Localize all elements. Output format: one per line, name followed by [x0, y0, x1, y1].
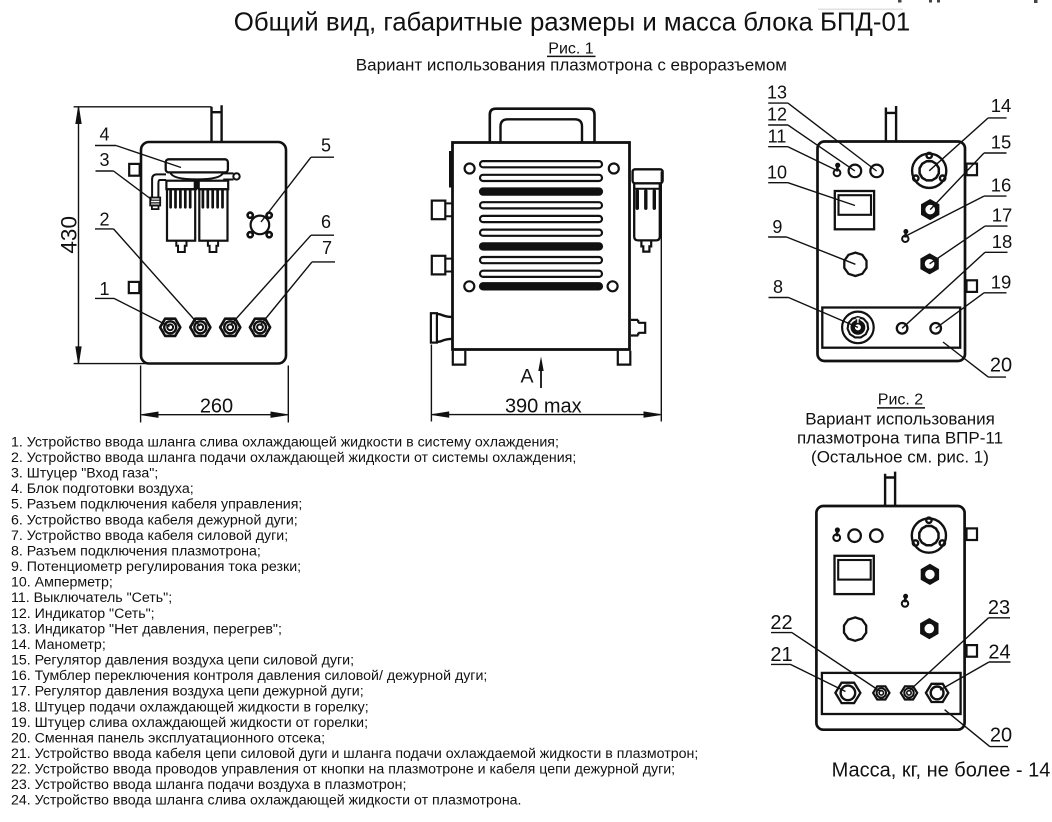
svg-text:1. Устройство ввода шланга сли: 1. Устройство ввода шланга слива охлажда…	[11, 434, 559, 450]
svg-text:А: А	[520, 366, 533, 388]
svg-text:390 max: 390 max	[505, 396, 582, 418]
svg-text:13: 13	[767, 83, 787, 103]
svg-text:8. Разъем подключения плазмотр: 8. Разъем подключения плазмотрона;	[11, 544, 261, 560]
svg-text:8: 8	[773, 277, 783, 297]
svg-text:3: 3	[99, 150, 109, 170]
svg-text:5. Разъем подключения кабеля у: 5. Разъем подключения кабеля управления;	[11, 497, 302, 513]
svg-text:15: 15	[991, 132, 1012, 153]
svg-text:17. Регулятор давления воздуха: 17. Регулятор давления воздуха цепи дежу…	[11, 684, 364, 700]
svg-text:23. Устройство ввода шланга по: 23. Устройство ввода шланга подачи возду…	[11, 777, 406, 793]
svg-text:3. Штуцер "Вход газа";: 3. Штуцер "Вход газа";	[11, 466, 158, 482]
svg-text:22. Устройство ввода проводов: 22. Устройство ввода проводов управления…	[11, 762, 675, 778]
svg-text:12. Индикатор "Сеть";: 12. Индикатор "Сеть";	[11, 606, 155, 622]
svg-text:2. Устройство ввода шланга под: 2. Устройство ввода шланга подачи охлажд…	[11, 450, 576, 466]
svg-text:9: 9	[772, 217, 782, 237]
svg-text:7: 7	[322, 238, 332, 258]
svg-text:1: 1	[99, 279, 109, 299]
svg-text:Общий вид, габаритные размеры: Общий вид, габаритные размеры и масса бл…	[234, 8, 910, 36]
svg-text:14: 14	[991, 95, 1012, 116]
svg-text:7. Устройство ввода кабеля сил: 7. Устройство ввода кабеля силовой дуги;	[11, 528, 288, 544]
svg-text:плазмотрона типа ВПР-11: плазмотрона типа ВПР-11	[797, 429, 1003, 448]
svg-text:260: 260	[200, 396, 233, 418]
svg-text:15. Регулятор давления воздуха: 15. Регулятор давления воздуха цепи сило…	[11, 653, 354, 669]
svg-text:19. Штуцер слива охлаждающей ж: 19. Штуцер слива охлаждающей жидкости от…	[11, 715, 368, 731]
svg-text:21. Устройство ввода кабеля це: 21. Устройство ввода кабеля цепи силовой…	[11, 746, 698, 762]
svg-text:22: 22	[770, 612, 792, 634]
svg-text:Масса, кг, не более - 14: Масса, кг, не более - 14	[832, 759, 1051, 781]
svg-text:9. Потенциометр регулирования: 9. Потенциометр регулирования тока резки…	[11, 559, 301, 575]
svg-text:4. Блок подготовки воздуха;: 4. Блок подготовки воздуха;	[11, 481, 194, 497]
svg-text:16. Тумблер переключения контр: 16. Тумблер переключения контроля давлен…	[11, 668, 487, 684]
svg-text:21: 21	[770, 644, 792, 666]
svg-text:20. Сменная панель эксплуатаци: 20. Сменная панель эксплуатационного отс…	[11, 730, 325, 746]
svg-text:11. Выключатель "Сеть";: 11. Выключатель "Сеть";	[11, 590, 172, 606]
svg-text:12: 12	[767, 105, 787, 125]
svg-text:4: 4	[99, 125, 109, 145]
svg-text:10. Амперметр;: 10. Амперметр;	[11, 575, 113, 591]
svg-text:20: 20	[990, 724, 1012, 746]
svg-text:23: 23	[988, 597, 1010, 619]
svg-text:16: 16	[991, 175, 1012, 196]
svg-text:6. Устройство ввода кабеля деж: 6. Устройство ввода кабеля дежурной дуги…	[11, 512, 298, 528]
svg-text:5: 5	[321, 135, 331, 155]
svg-text:24. Устройство ввода шланга сл: 24. Устройство ввода шланга слива охлажд…	[11, 793, 521, 809]
svg-text:Рис. 2: Рис. 2	[878, 392, 924, 409]
svg-text:6: 6	[321, 212, 331, 232]
svg-text:18. Штуцер подачи охлаждающей: 18. Штуцер подачи охлаждающей жидкости в…	[11, 699, 369, 715]
svg-text:Вариант использования плазмотр: Вариант использования плазмотрона с евро…	[356, 55, 787, 74]
svg-text:11: 11	[768, 126, 787, 146]
svg-text:10: 10	[767, 162, 787, 182]
svg-text:(Остальное см. рис. 1): (Остальное см. рис. 1)	[811, 447, 989, 466]
svg-text:Вариант использования: Вариант использования	[805, 409, 995, 428]
svg-text:19: 19	[991, 271, 1012, 292]
svg-text:13. Индикатор "Нет давления, п: 13. Индикатор "Нет давления, перегрев";	[11, 621, 282, 637]
svg-text:14. Манометр;: 14. Манометр;	[11, 637, 106, 653]
svg-text:430: 430	[57, 216, 82, 254]
svg-text:24: 24	[988, 642, 1010, 664]
svg-text:20: 20	[990, 355, 1012, 377]
svg-text:18: 18	[992, 231, 1013, 252]
svg-text:17: 17	[992, 205, 1013, 226]
svg-text:2: 2	[99, 209, 109, 229]
